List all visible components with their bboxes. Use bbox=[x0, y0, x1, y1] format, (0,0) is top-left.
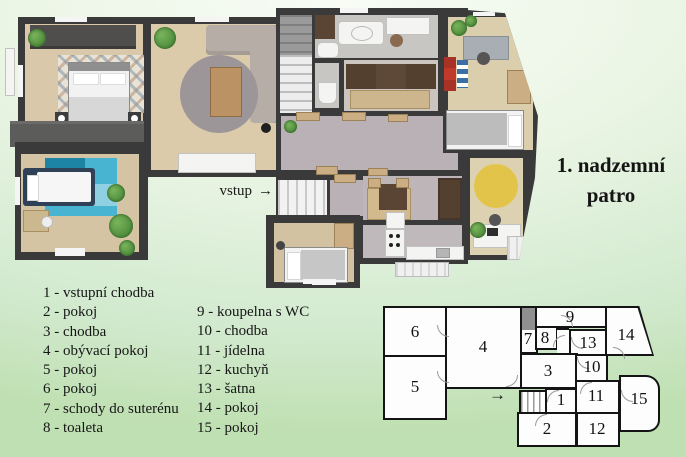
door-leaf bbox=[296, 112, 320, 121]
hallway-floor bbox=[281, 116, 458, 170]
window bbox=[473, 12, 495, 16]
room2-walls bbox=[266, 215, 360, 288]
chair bbox=[41, 216, 53, 228]
sideboard bbox=[178, 153, 256, 173]
chair bbox=[396, 178, 409, 188]
single-bed bbox=[23, 168, 95, 206]
balcony bbox=[5, 48, 15, 96]
terrace bbox=[507, 236, 537, 260]
pillow bbox=[508, 115, 522, 147]
window bbox=[55, 17, 87, 22]
toilet bbox=[318, 82, 337, 104]
room5-walls bbox=[15, 142, 148, 260]
legend-item-12: 12 - kuchyň bbox=[197, 361, 309, 380]
office-chair bbox=[489, 214, 501, 226]
infographic-canvas: vstup→ 1. nadzemní patro 1 - vstupní cho… bbox=[0, 0, 686, 457]
floor-plan-3d: vstup→ bbox=[5, 5, 540, 290]
sink-basin bbox=[351, 26, 373, 41]
bookshelf bbox=[457, 60, 468, 88]
bench bbox=[507, 70, 531, 104]
laundry-basket bbox=[390, 34, 403, 47]
basement-stairs-upper bbox=[280, 15, 312, 55]
legend-item-7: 7 - schody do suterénu bbox=[43, 400, 179, 419]
legend-item-4: 4 - obývací pokoj bbox=[43, 342, 179, 361]
schematic-room-number-5: 5 bbox=[411, 377, 420, 397]
mattress bbox=[37, 172, 91, 202]
title-line-2: patro bbox=[536, 180, 686, 210]
bathtub bbox=[386, 17, 430, 35]
pillow bbox=[27, 175, 39, 201]
schematic-room-number-12: 12 bbox=[589, 419, 606, 439]
legend-item-15: 15 - pokoj bbox=[197, 419, 309, 438]
blanket bbox=[301, 250, 345, 280]
office-chair bbox=[477, 52, 490, 65]
legend-item-2: 2 - pokoj bbox=[43, 303, 179, 322]
door-leaf bbox=[368, 168, 388, 176]
plant-icon bbox=[470, 222, 486, 238]
schematic-room-number-13: 13 bbox=[580, 333, 597, 353]
stove bbox=[385, 229, 405, 257]
schematic-room-number-4: 4 bbox=[479, 337, 488, 357]
schematic-entrance-stairs bbox=[519, 390, 547, 414]
blanket bbox=[447, 113, 507, 145]
plant-icon bbox=[109, 214, 133, 238]
schematic-room-number-15: 15 bbox=[631, 389, 648, 409]
schematic-room-number-7: 7 bbox=[524, 329, 533, 349]
entry-hall-floor bbox=[330, 180, 363, 216]
legend-item-9: 9 - koupelna s WC bbox=[197, 303, 309, 322]
entrance-label-text: vstup bbox=[219, 183, 252, 199]
legend-item-10: 10 - chodba bbox=[197, 322, 309, 341]
schematic-entry-arrow-icon: → bbox=[489, 385, 506, 405]
title-line-1: 1. nadzemní bbox=[536, 150, 686, 180]
kitchen-counter bbox=[406, 246, 464, 260]
schematic-room-number-2: 2 bbox=[543, 419, 552, 439]
window bbox=[195, 17, 229, 22]
legend-item-13: 13 - šatna bbox=[197, 380, 309, 399]
entrance-arrow-icon: → bbox=[258, 183, 273, 199]
schematic-room-number-10: 10 bbox=[584, 357, 601, 377]
schematic-room-number-14: 14 bbox=[618, 325, 635, 345]
schematic-room-number-3: 3 bbox=[544, 361, 553, 381]
plant-icon bbox=[154, 27, 176, 49]
legend-item-6: 6 - pokoj bbox=[43, 380, 179, 399]
terrace bbox=[395, 262, 449, 277]
plant-icon bbox=[119, 240, 135, 256]
window bbox=[15, 177, 20, 205]
plant-icon bbox=[28, 29, 46, 47]
wardrobe bbox=[334, 223, 354, 249]
single-bed bbox=[446, 110, 524, 150]
door-leaf bbox=[342, 112, 366, 121]
basement-stairs bbox=[280, 55, 312, 113]
wardrobe bbox=[346, 64, 436, 89]
toilet bbox=[317, 42, 339, 58]
legend-item-5: 5 - pokoj bbox=[43, 361, 179, 380]
red-bookshelf bbox=[444, 57, 456, 91]
window bbox=[303, 279, 327, 284]
pillow bbox=[100, 73, 126, 85]
door-leaf bbox=[334, 174, 356, 183]
legend-item-8: 8 - toaleta bbox=[43, 419, 179, 438]
legend-item-14: 14 - pokoj bbox=[197, 399, 309, 418]
sink-vanity bbox=[338, 21, 384, 45]
dresser bbox=[350, 90, 430, 109]
pillow bbox=[73, 73, 99, 85]
burner-icon bbox=[396, 243, 400, 247]
coffee-table bbox=[210, 67, 242, 117]
burner-icon bbox=[389, 243, 393, 247]
legend-item-11: 11 - jídelna bbox=[197, 342, 309, 361]
chair bbox=[368, 178, 381, 188]
yellow-round-rug bbox=[474, 164, 518, 208]
schematic-room-number-11: 11 bbox=[588, 386, 604, 406]
legend-column-1: 1 - vstupní chodba 2 - pokoj 3 - chodba … bbox=[43, 284, 179, 438]
laptop bbox=[487, 228, 498, 236]
entrance-label: vstup→ bbox=[201, 183, 273, 200]
burner-icon bbox=[396, 234, 400, 238]
pillow bbox=[287, 252, 301, 280]
window bbox=[340, 8, 368, 13]
floor-plan-schematic: → 6 5 4 7 8 9 13 14 3 10 1 11 15 2 12 bbox=[375, 295, 681, 455]
sideboard-cabinet bbox=[438, 178, 462, 220]
fridge bbox=[386, 212, 405, 229]
schematic-room-number-9: 9 bbox=[566, 307, 575, 327]
schematic-room-number-6: 6 bbox=[411, 322, 420, 342]
headboard bbox=[69, 63, 129, 71]
plant-icon bbox=[465, 15, 477, 27]
legend-item-3: 3 - chodba bbox=[43, 323, 179, 342]
door-leaf bbox=[388, 114, 408, 122]
plant-icon bbox=[284, 120, 297, 133]
kitchen-sink bbox=[436, 248, 450, 258]
page-title: 1. nadzemní patro bbox=[536, 150, 686, 211]
burner-icon bbox=[389, 234, 393, 238]
schematic-room-number-8: 8 bbox=[541, 328, 550, 348]
legend-item-1: 1 - vstupní chodba bbox=[43, 284, 179, 303]
bathroom-cabinet bbox=[315, 15, 335, 39]
window bbox=[18, 65, 23, 97]
schematic-room-number-1: 1 bbox=[557, 390, 566, 410]
schematic-stair-shaft bbox=[522, 308, 535, 330]
single-bed bbox=[284, 247, 348, 283]
entrance-stairs bbox=[278, 178, 327, 220]
patio-door bbox=[55, 248, 85, 256]
plant-icon bbox=[107, 184, 125, 202]
legend-column-2: 9 - koupelna s WC 10 - chodba 11 - jídel… bbox=[197, 303, 309, 438]
wood-stove bbox=[261, 123, 271, 133]
lamp-icon bbox=[276, 241, 285, 250]
